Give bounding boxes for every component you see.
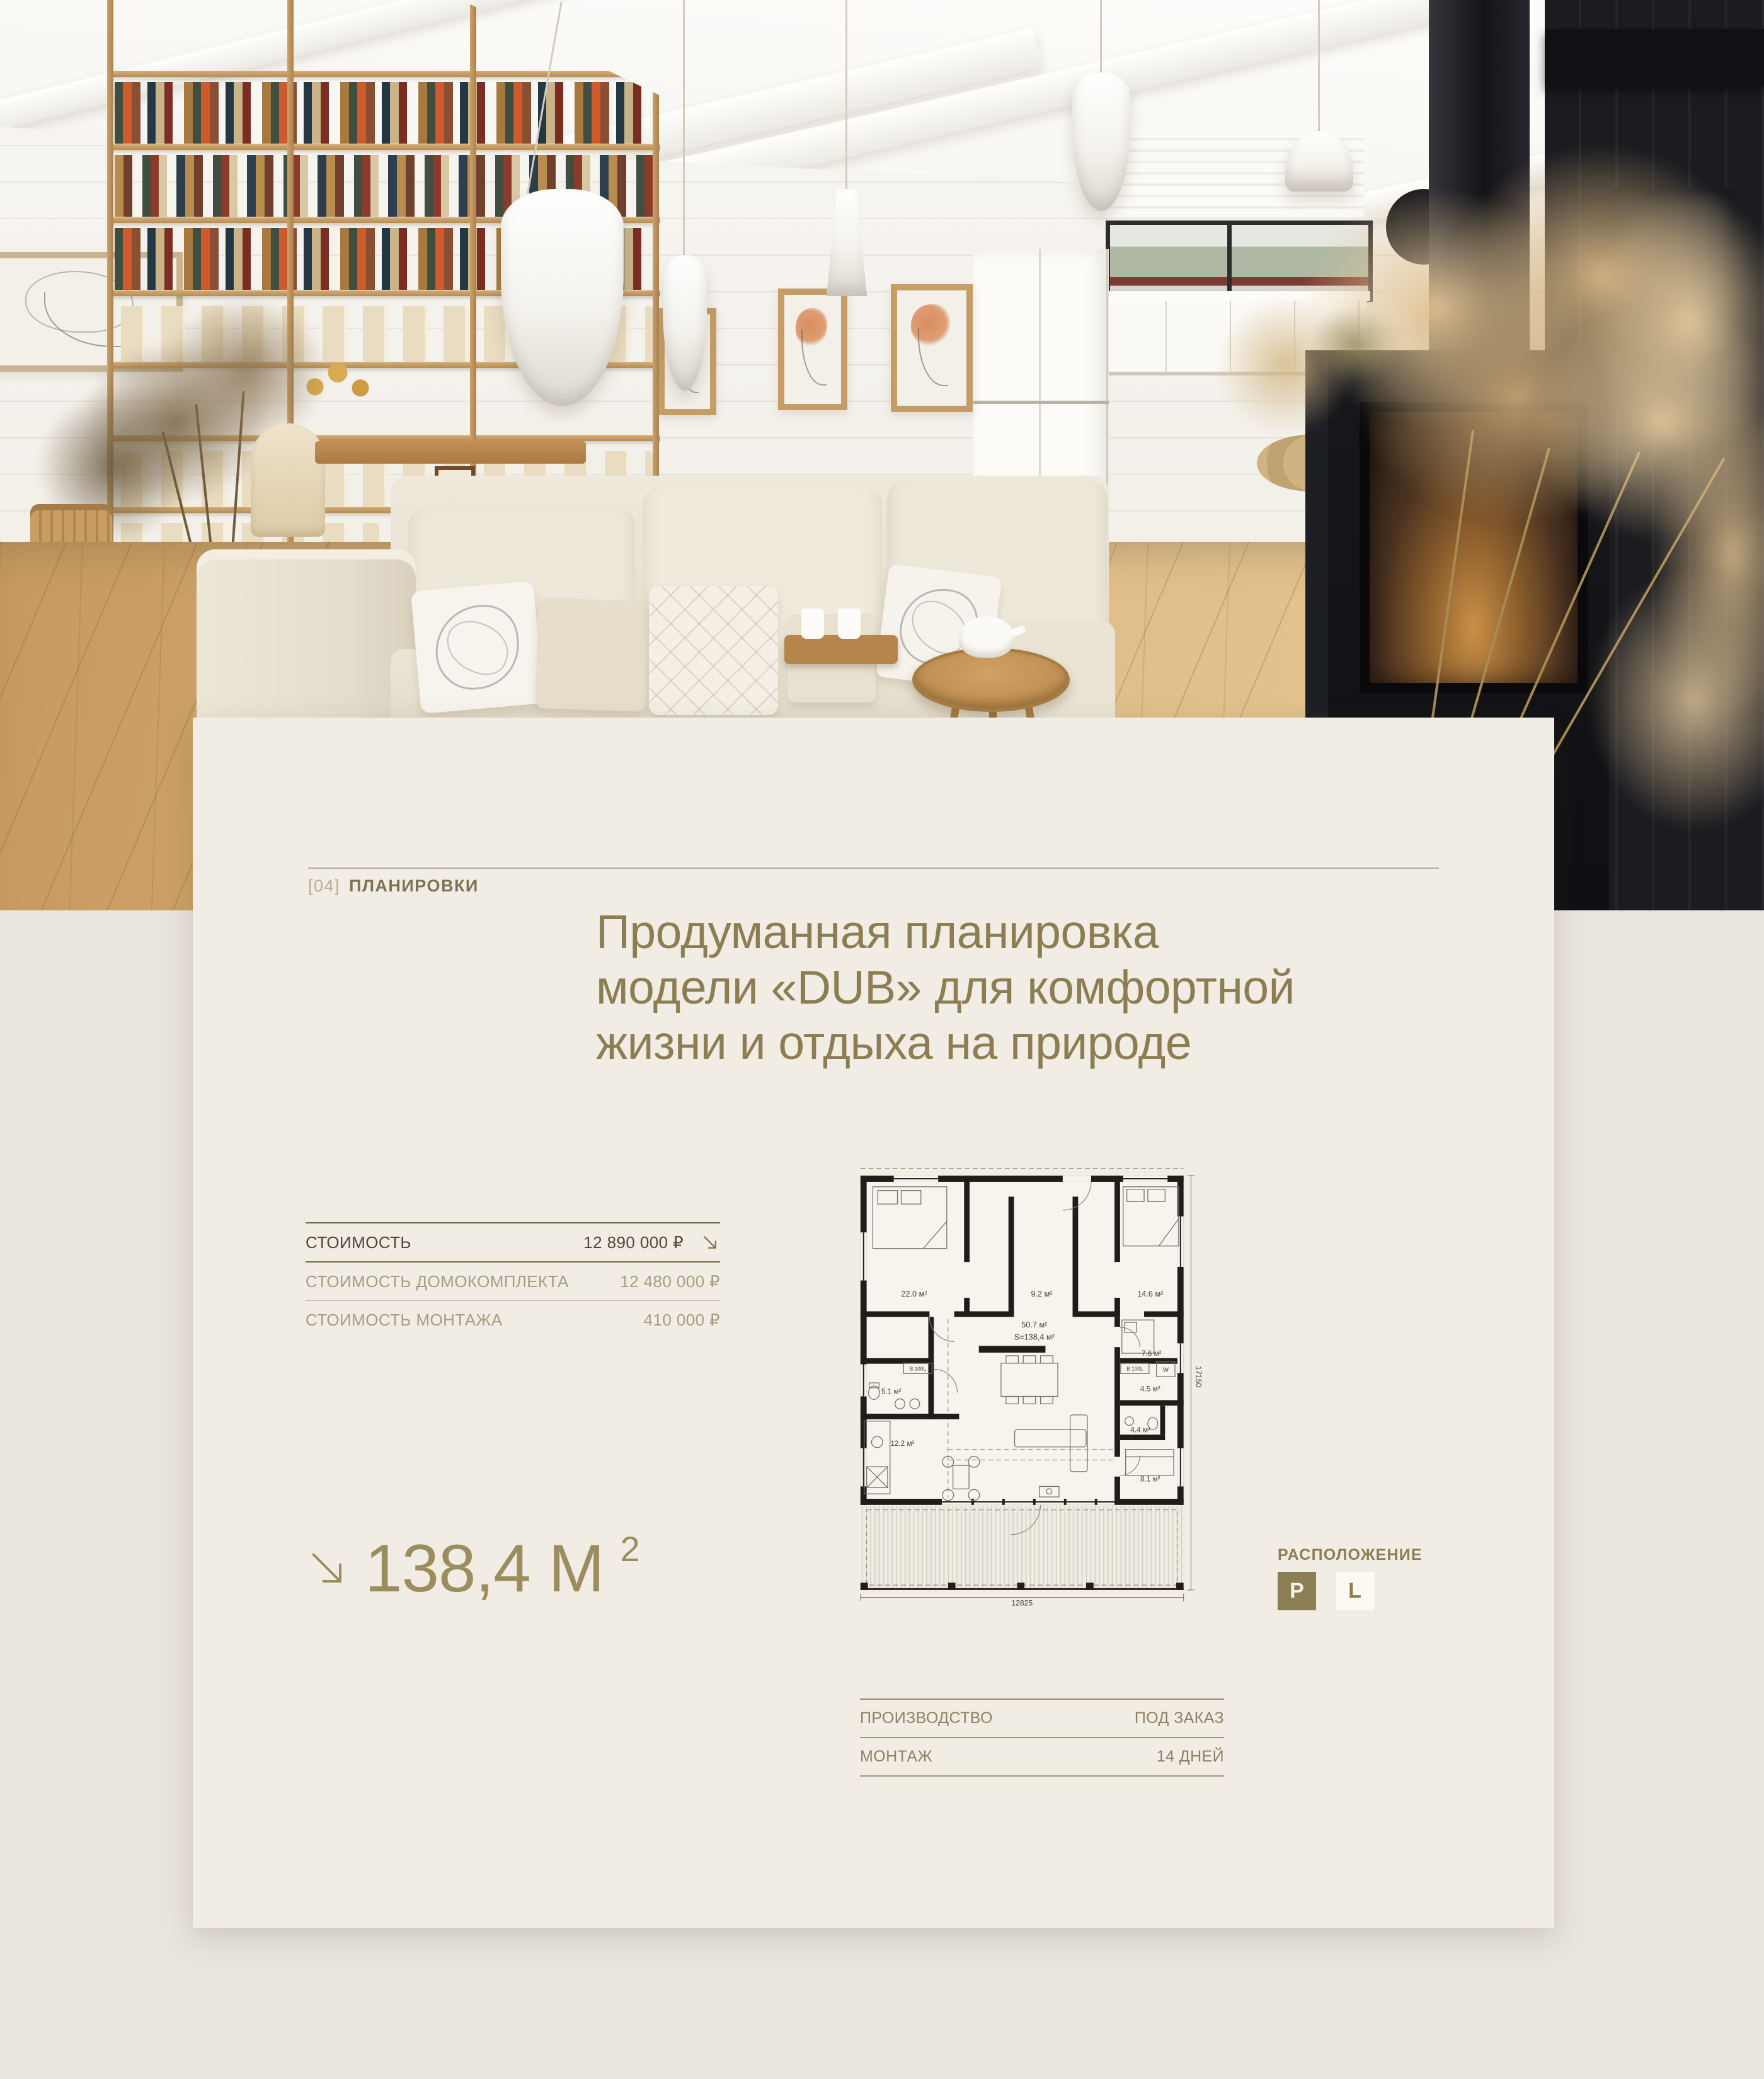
plan-room-label: 4.4 м²	[1130, 1426, 1150, 1434]
pricing-label: СТОИМОСТЬ	[306, 1233, 411, 1252]
section-title: ПЛАНИРОВКИ	[349, 876, 479, 895]
pricing-table: СТОИМОСТЬ 12 890 000 ₽ СТОИМОСТЬ ДОМОКОМ…	[306, 1222, 720, 1339]
plan-room-label: 14.6 м²	[1137, 1289, 1163, 1298]
wall-art-frame	[778, 289, 847, 410]
serving-tray	[784, 635, 898, 664]
lamp-cord	[1100, 0, 1102, 76]
plan-washer-label: W	[1163, 1366, 1169, 1373]
section-divider	[308, 868, 1439, 869]
page-title: Продуманная планировка модели «DUB» для …	[596, 904, 1358, 1070]
plan-room-label: 5.1 м²	[881, 1388, 902, 1396]
pricing-value: 410 000 ₽	[644, 1310, 720, 1330]
plan-room-label: 22.0 м²	[901, 1289, 927, 1298]
location-label: РАСПОЛОЖЕНИЕ	[1278, 1546, 1423, 1564]
dining-chair	[251, 423, 325, 537]
kitchen-window-mullion	[1227, 220, 1232, 293]
plan-room-label: 50.7 м²	[1021, 1320, 1047, 1329]
mug	[838, 609, 861, 639]
location-option-p[interactable]: P	[1278, 1572, 1316, 1610]
pillow-beige	[535, 598, 649, 712]
dining-table	[315, 441, 586, 464]
arrow-down-right-icon	[304, 1545, 350, 1591]
production-value: ПОД ЗАКАЗ	[1135, 1709, 1224, 1727]
plan-area-label: S=138,4 м²	[1014, 1332, 1055, 1341]
plan-room-label: 8.1 м²	[1140, 1475, 1160, 1484]
pricing-label: СТОИМОСТЬ ДОМОКОМПЛЕКТА	[306, 1272, 569, 1291]
section-index: [04]	[308, 876, 340, 895]
wall-art-frame	[891, 284, 973, 412]
pricing-value: 12 480 000 ₽	[620, 1272, 720, 1291]
plan-boiler-label: B 100L	[1126, 1365, 1143, 1372]
pillow-quilted	[649, 586, 778, 715]
plan-boiler-label: B 100L	[910, 1365, 927, 1372]
arrow-down-right-icon[interactable]	[700, 1232, 720, 1252]
plan-room-label: 12.2 м²	[890, 1440, 914, 1448]
production-label: МОНТАЖ	[860, 1748, 932, 1766]
section-label: [04]ПЛАНИРОВКИ	[308, 876, 479, 896]
total-area: 138,4 М2	[304, 1537, 639, 1600]
page-title-line: жизни и отдыха на природе	[596, 1015, 1358, 1070]
plan-room-label: 9.2 м²	[1031, 1289, 1052, 1298]
page-title-line: Продуманная планировка	[596, 904, 1358, 959]
area-superscript: 2	[621, 1532, 640, 1567]
production-row: МОНТАЖ 14 ДНЕЙ	[860, 1738, 1224, 1777]
plan-dim-width: 12825	[1011, 1598, 1033, 1607]
pricing-label: СТОИМОСТЬ МОНТАЖА	[306, 1310, 503, 1330]
lamp-cord	[1318, 0, 1320, 134]
page: [04]ПЛАНИРОВКИ Продуманная планировка мо…	[0, 0, 1764, 2079]
lamp-cord	[683, 0, 685, 258]
production-value: 14 ДНЕЙ	[1157, 1748, 1224, 1766]
teapot	[959, 616, 1014, 658]
lamp-cord	[845, 0, 847, 192]
plan-room-label: 4.5 м²	[1140, 1385, 1160, 1394]
plan-dim-height: 17150	[1194, 1366, 1203, 1387]
production-label: ПРОИЗВОДСТВО	[860, 1709, 993, 1727]
production-row: ПРОИЗВОДСТВО ПОД ЗАКАЗ	[860, 1698, 1224, 1738]
page-title-line: модели «DUB» для комфортной	[596, 959, 1358, 1015]
production-table: ПРОИЗВОДСТВО ПОД ЗАКАЗ МОНТАЖ 14 ДНЕЙ	[860, 1698, 1224, 1777]
pricing-row-kit: СТОИМОСТЬ ДОМОКОМПЛЕКТА 12 480 000 ₽	[306, 1263, 720, 1301]
pillow-line-art	[411, 581, 544, 714]
location-option-l[interactable]: L	[1336, 1572, 1374, 1610]
floor-plan: 22.0 м² 9.2 м² 14.6 м² 50.7 м² S=138,4 м…	[856, 1159, 1203, 1607]
mug	[801, 609, 824, 639]
pricing-value: 12 890 000 ₽	[583, 1233, 684, 1252]
plan-room-label: 7.6 м²	[1142, 1349, 1162, 1358]
pricing-row-install: СТОИМОСТЬ МОНТАЖА 410 000 ₽	[306, 1301, 720, 1339]
kitchen-cabinet-seam	[973, 401, 1109, 404]
black-beam	[1545, 29, 1764, 86]
pricing-row-total[interactable]: СТОИМОСТЬ 12 890 000 ₽	[306, 1222, 720, 1263]
layout-card: [04]ПЛАНИРОВКИ Продуманная планировка мо…	[193, 718, 1554, 1928]
area-value: 138,4 М	[365, 1537, 604, 1600]
